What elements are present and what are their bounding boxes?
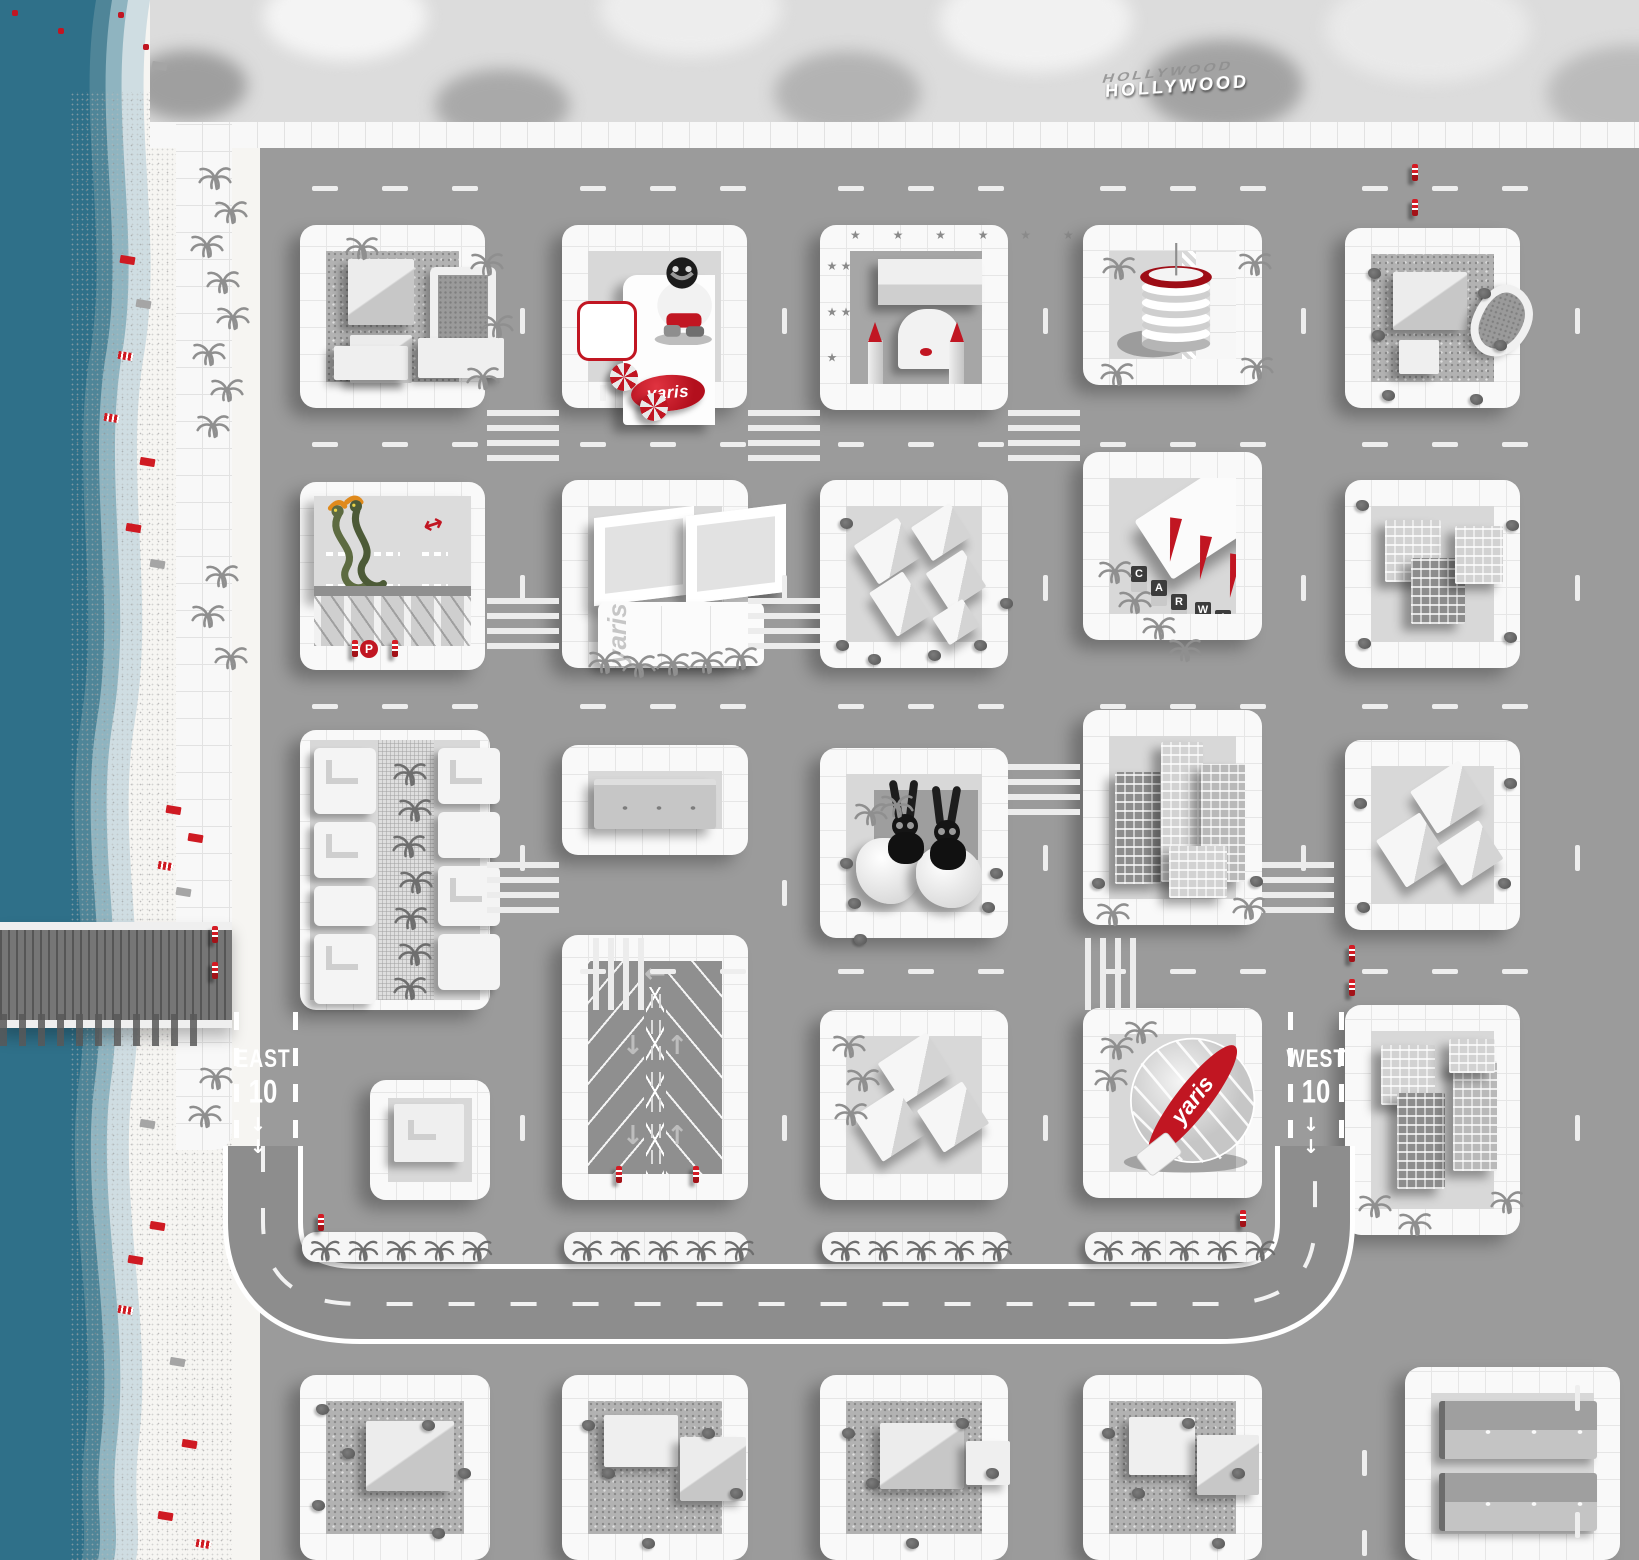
red-bollard-icon — [1412, 164, 1418, 181]
lane-dash — [382, 186, 408, 191]
lane-dash — [1502, 969, 1528, 974]
shrub-icon — [1000, 598, 1013, 609]
palm-tree-icon — [656, 648, 690, 678]
lane-dash — [720, 704, 746, 709]
palm-tree-icon — [310, 1236, 341, 1263]
lane-dash — [520, 308, 525, 334]
palm-tree-icon — [832, 1030, 866, 1060]
lane-dash — [782, 1115, 787, 1141]
lane-dash — [978, 704, 1004, 709]
lane-dash — [1575, 575, 1580, 601]
east-10-sign: EAST 10 ↓ ↓ — [231, 1048, 295, 1158]
shrub-icon — [1372, 330, 1385, 341]
palm-tree-icon — [196, 410, 230, 440]
palm-tree-icon — [1240, 352, 1274, 382]
lane-dash — [1432, 186, 1458, 191]
palm-tree-icon — [1124, 1016, 1158, 1046]
lane-dash — [908, 969, 934, 974]
shrub-icon — [840, 518, 853, 529]
palm-tree-icon — [880, 790, 914, 820]
shrub-icon — [1354, 798, 1367, 809]
lane-dash — [1240, 442, 1266, 447]
shrub-icon — [1470, 394, 1483, 405]
palm-tree-icon — [210, 374, 244, 404]
lane-dash — [1240, 704, 1266, 709]
lane-dash — [838, 704, 864, 709]
palm-tree-icon — [686, 1236, 717, 1263]
red-bollard-icon — [352, 640, 358, 657]
lane-dash — [1362, 704, 1388, 709]
shrub-icon — [702, 1428, 715, 1439]
palm-tree-icon — [199, 1062, 233, 1092]
lane-dash — [1362, 969, 1388, 974]
palm-tree-icon — [398, 794, 432, 824]
palm-tree-icon — [191, 600, 225, 630]
lane-dash — [1432, 704, 1458, 709]
lane-dash — [1575, 1512, 1580, 1538]
lane-dash — [1362, 442, 1388, 447]
west-10-sign: WEST 10 ↓ ↓ — [1284, 1048, 1348, 1158]
down-arrows-icon: ↓ ↓ — [231, 1114, 295, 1158]
shrub-icon — [956, 1418, 969, 1429]
lane-dash — [650, 969, 676, 974]
red-bollard-icon — [318, 1214, 324, 1231]
palm-tree-icon — [190, 230, 224, 260]
lane-dash — [782, 308, 787, 334]
palm-tree-icon — [1358, 1190, 1392, 1220]
shrub-icon — [1357, 902, 1370, 913]
lane-dash — [312, 704, 338, 709]
palm-tree-icon — [399, 866, 433, 896]
shrub-icon — [836, 640, 849, 651]
shrub-icon — [1498, 878, 1511, 889]
lane-dash — [720, 969, 746, 974]
lane-dash — [1170, 704, 1196, 709]
shrub-icon — [1102, 1428, 1115, 1439]
red-bollard-icon — [212, 926, 218, 943]
lane-dash — [1043, 308, 1048, 334]
shrub-icon — [866, 1478, 879, 1489]
lane-dash — [452, 186, 478, 191]
lane-dash — [580, 186, 606, 191]
red-bollard-icon — [1349, 945, 1355, 962]
palm-tree-icon — [846, 1064, 880, 1094]
palm-tree-icon — [1232, 892, 1266, 922]
lane-dash — [1301, 575, 1306, 601]
red-bollard-icon — [1240, 1210, 1246, 1227]
palm-tree-icon — [214, 196, 248, 226]
lane-dash — [1502, 442, 1528, 447]
palm-tree-icon — [622, 650, 656, 680]
shrub-icon — [1494, 340, 1507, 351]
shrub-icon — [1358, 638, 1371, 649]
shrub-icon — [974, 640, 987, 651]
palm-tree-icon — [724, 642, 758, 672]
lane-dash — [908, 186, 934, 191]
palm-tree-icon — [982, 1236, 1013, 1263]
red-bollard-icon — [212, 962, 218, 979]
lane-dash — [580, 442, 606, 447]
lane-dash — [1301, 308, 1306, 334]
palm-tree-icon — [1207, 1236, 1238, 1263]
palm-tree-icon — [648, 1236, 679, 1263]
lane-dash — [1100, 704, 1126, 709]
shrub-icon — [1382, 390, 1395, 401]
lane-dash — [452, 704, 478, 709]
palm-tree-icon — [588, 646, 622, 676]
palm-tree-icon — [192, 338, 226, 368]
red-marker — [118, 12, 124, 18]
lane-dash — [1502, 186, 1528, 191]
lane-dash — [720, 186, 746, 191]
lane-dash — [1575, 1385, 1580, 1411]
crosswalk — [748, 410, 820, 466]
shrub-icon — [986, 1468, 999, 1479]
palm-tree-icon — [906, 1236, 937, 1263]
shrub-icon — [582, 1420, 595, 1431]
red-marker — [143, 44, 149, 50]
red-marker — [58, 28, 64, 34]
palm-tree-icon — [1094, 1064, 1128, 1094]
palm-tree-icon — [424, 1236, 455, 1263]
lane-dash — [838, 969, 864, 974]
lane-dash — [382, 442, 408, 447]
shrub-icon — [342, 1448, 355, 1459]
lane-dash — [838, 442, 864, 447]
lane-dash — [312, 186, 338, 191]
palm-tree-icon — [1100, 358, 1134, 388]
palm-tree-icon — [690, 646, 724, 676]
lane-dash — [1043, 1115, 1048, 1141]
shrub-icon — [1250, 876, 1263, 887]
palm-tree-icon — [1490, 1186, 1524, 1216]
lane-dash — [312, 442, 338, 447]
palm-tree-icon — [1131, 1236, 1162, 1263]
lane-dash — [1100, 186, 1126, 191]
palm-tree-icon — [1398, 1208, 1432, 1238]
shrub-icon — [642, 1538, 655, 1549]
red-bollard-icon — [1412, 199, 1418, 216]
palm-tree-icon — [1169, 1236, 1200, 1263]
lane-dash — [650, 186, 676, 191]
lane-dash — [1575, 845, 1580, 871]
palm-tree-icon — [610, 1236, 641, 1263]
palm-tree-icon — [572, 1236, 603, 1263]
lane-dash — [1575, 1115, 1580, 1141]
shrub-icon — [990, 868, 1003, 879]
palm-tree-icon — [868, 1236, 899, 1263]
shrub-icon — [1092, 878, 1105, 889]
lane-dash — [1362, 1450, 1367, 1476]
palm-tree-icon — [1168, 634, 1202, 664]
shrub-icon — [458, 1468, 471, 1479]
palm-tree-icon — [1102, 252, 1136, 282]
lane-dash — [978, 186, 1004, 191]
shrub-icon — [868, 654, 881, 665]
shrub-icon — [316, 1404, 329, 1415]
shrub-icon — [928, 650, 941, 661]
down-arrows-icon: ↓ ↓ — [1284, 1114, 1348, 1158]
palm-tree-icon — [1096, 898, 1130, 928]
shrub-icon — [422, 1420, 435, 1431]
palm-tree-icon — [470, 248, 504, 278]
shrub-icon — [432, 1528, 445, 1539]
shrub-icon — [842, 1428, 855, 1439]
shrub-icon — [1368, 268, 1381, 279]
palm-tree-icon — [1093, 1236, 1124, 1263]
shrub-icon — [848, 898, 861, 909]
city-map: HOLLYWOOD HOLLYWOOD yaris — [0, 0, 1639, 1560]
lane-dash — [1170, 186, 1196, 191]
shrub-icon — [1212, 1538, 1225, 1549]
shrub-icon — [840, 858, 853, 869]
lane-dash — [978, 442, 1004, 447]
palm-tree-icon — [206, 266, 240, 296]
palm-tree-icon — [462, 1236, 493, 1263]
palm-tree-icon — [392, 830, 426, 860]
shrub-icon — [1504, 632, 1517, 643]
shrub-icon — [854, 934, 867, 945]
lane-dash — [978, 969, 1004, 974]
palm-tree-icon — [393, 758, 427, 788]
palm-tree-icon — [480, 310, 514, 340]
shrub-icon — [982, 902, 995, 913]
palm-tree-icon — [724, 1236, 755, 1263]
shrub-icon — [1478, 288, 1491, 299]
lane-dash — [1432, 969, 1458, 974]
red-bollard-icon — [693, 1166, 699, 1183]
lane-dash — [1100, 442, 1126, 447]
lane-dash — [580, 704, 606, 709]
freeway-10[interactable] — [0, 0, 1639, 1560]
lane-dash — [782, 880, 787, 906]
shrub-icon — [730, 1488, 743, 1499]
shrub-icon — [1356, 500, 1369, 511]
shrub-icon — [1132, 1488, 1145, 1499]
palm-tree-icon — [944, 1236, 975, 1263]
shrub-icon — [1182, 1418, 1195, 1429]
crosswalk — [487, 410, 559, 466]
red-marker — [12, 10, 18, 16]
lane-dash — [1170, 969, 1196, 974]
lane-dash — [1240, 969, 1266, 974]
parking-sign: P — [360, 640, 378, 658]
crosswalk — [593, 938, 649, 1010]
palm-tree-icon — [398, 938, 432, 968]
lane-dash — [1043, 575, 1048, 601]
crosswalk — [487, 598, 559, 654]
palm-tree-icon — [834, 1098, 868, 1128]
crosswalk — [1008, 764, 1080, 820]
crosswalk — [1085, 938, 1141, 1010]
lane-dash — [452, 442, 478, 447]
lane-dash — [650, 442, 676, 447]
lane-dash — [1170, 442, 1196, 447]
palm-tree-icon — [348, 1236, 379, 1263]
lane-dash — [1362, 1530, 1367, 1556]
lane-dash — [1502, 704, 1528, 709]
lane-dash — [382, 704, 408, 709]
red-bollard-icon — [616, 1166, 622, 1183]
palm-tree-icon — [214, 642, 248, 672]
palm-tree-icon — [1238, 248, 1272, 278]
lane-dash — [520, 1115, 525, 1141]
lane-dash — [838, 186, 864, 191]
shrub-icon — [1232, 1468, 1245, 1479]
lane-dash — [1432, 442, 1458, 447]
lane-dash — [1240, 186, 1266, 191]
shrub-icon — [1506, 520, 1519, 531]
crosswalk — [1262, 862, 1334, 918]
palm-tree-icon — [188, 1100, 222, 1130]
palm-tree-icon — [1245, 1236, 1276, 1263]
lane-dash — [908, 704, 934, 709]
crosswalk — [748, 598, 820, 654]
red-bollard-icon — [1349, 979, 1355, 996]
palm-tree-icon — [830, 1236, 861, 1263]
lane-dash — [1043, 845, 1048, 871]
lane-dash — [908, 442, 934, 447]
crosswalk — [1008, 410, 1080, 466]
lane-dash — [1362, 186, 1388, 191]
shrub-icon — [906, 1538, 919, 1549]
red-bollard-icon — [392, 640, 398, 657]
palm-tree-icon — [1098, 556, 1132, 586]
shrub-icon — [1504, 778, 1517, 789]
palm-tree-icon — [393, 972, 427, 1002]
palm-tree-icon — [198, 162, 232, 192]
palm-tree-icon — [394, 902, 428, 932]
shrub-icon — [602, 1468, 615, 1479]
palm-tree-icon — [466, 362, 500, 392]
lane-dash — [650, 704, 676, 709]
palm-tree-icon — [345, 232, 379, 262]
palm-tree-icon — [205, 560, 239, 590]
shrub-icon — [312, 1500, 325, 1511]
crosswalk — [487, 862, 559, 918]
palm-tree-icon — [386, 1236, 417, 1263]
lane-dash — [1575, 308, 1580, 334]
lane-dash — [720, 442, 746, 447]
palm-tree-icon — [216, 302, 250, 332]
